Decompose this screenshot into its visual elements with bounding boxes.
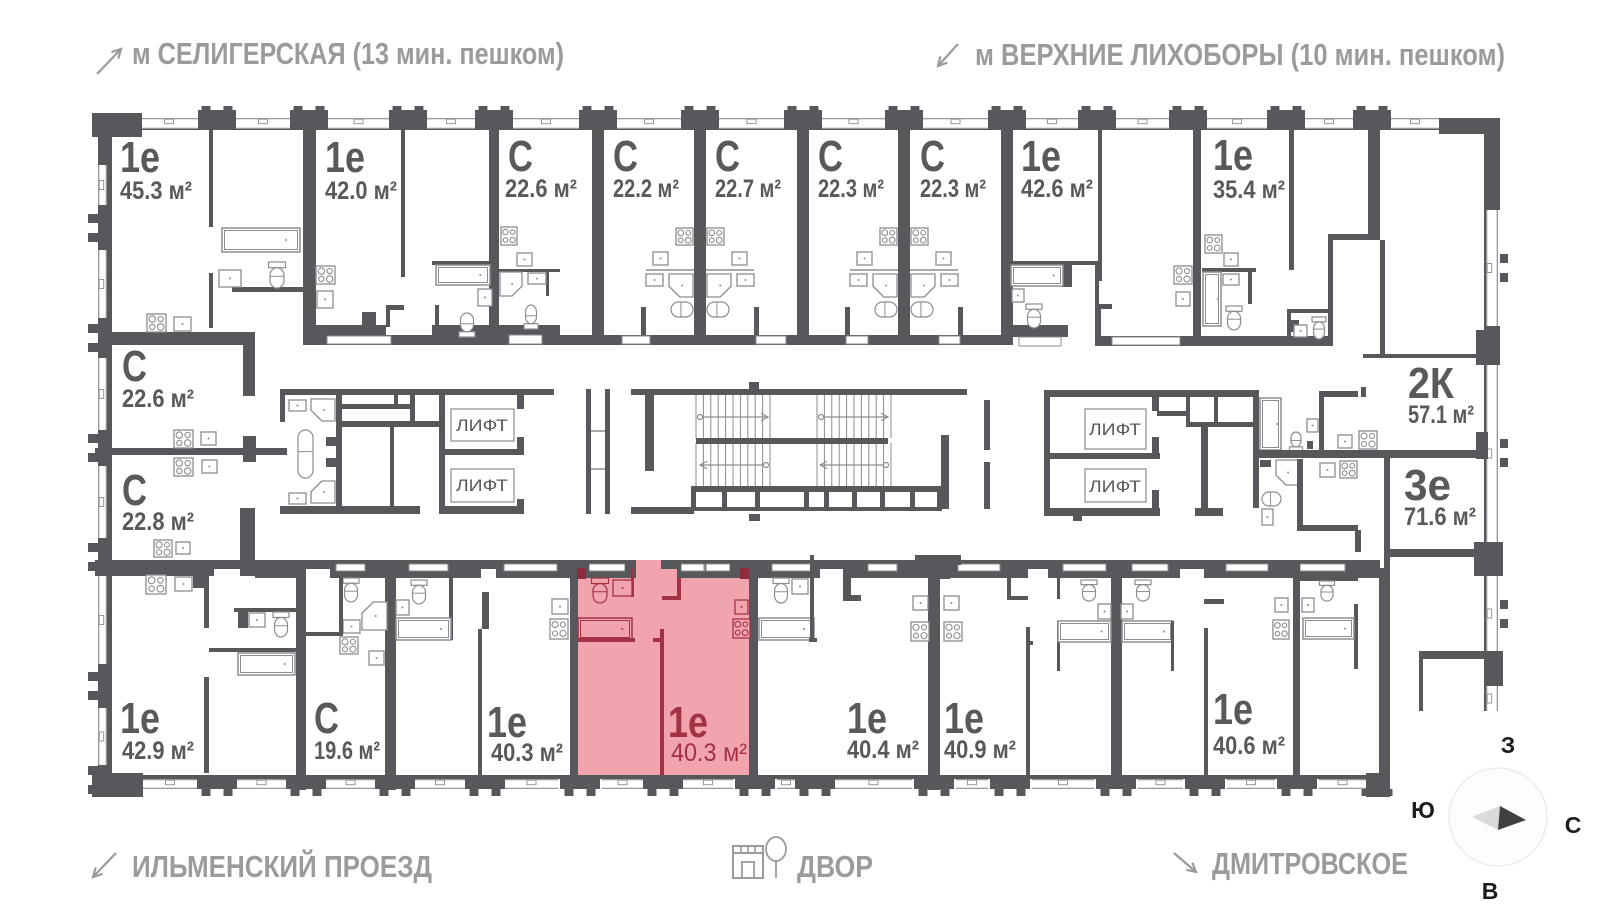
svg-text:ДВОР: ДВОР [797,849,873,884]
svg-text:м СЕЛИГЕРСКАЯ (13 мин. пешком): м СЕЛИГЕРСКАЯ (13 мин. пешком) [132,36,564,71]
svg-text:ИЛЬМЕНСКИЙ ПРОЕЗД: ИЛЬМЕНСКИЙ ПРОЕЗД [132,848,432,884]
svg-text:С: С [1565,812,1582,838]
svg-text:22.6 м²: 22.6 м² [122,385,194,413]
svg-text:35.4 м²: 35.4 м² [1213,176,1285,204]
svg-text:71.6 м²: 71.6 м² [1404,503,1476,531]
svg-text:57.1 м²: 57.1 м² [1408,401,1474,429]
svg-text:ЛИФТ: ЛИФТ [1089,477,1141,496]
svg-text:42.9 м²: 42.9 м² [122,737,194,765]
svg-text:ЛИФТ: ЛИФТ [456,416,508,435]
svg-text:22.3 м²: 22.3 м² [920,175,986,203]
svg-text:В: В [1482,878,1499,904]
svg-text:45.3 м²: 45.3 м² [120,177,192,205]
svg-text:С: С [818,132,843,181]
svg-text:1е: 1е [120,133,160,182]
svg-text:ДМИТРОВСКОЕ: ДМИТРОВСКОЕ [1212,846,1408,881]
svg-text:С: С [920,132,945,181]
svg-text:22.6 м²: 22.6 м² [505,175,577,203]
svg-text:м ВЕРХНИЕ ЛИХОБОРЫ (10 мин. пе: м ВЕРХНИЕ ЛИХОБОРЫ (10 мин. пешком) [975,37,1505,72]
svg-text:1е: 1е [1213,685,1253,734]
svg-text:1е: 1е [1021,132,1061,181]
svg-text:С: С [508,132,533,181]
svg-text:22.3 м²: 22.3 м² [818,175,884,203]
svg-text:22.7 м²: 22.7 м² [715,175,781,203]
svg-text:42.0 м²: 42.0 м² [325,177,397,205]
svg-text:ЛИФТ: ЛИФТ [456,476,508,495]
svg-text:З: З [1501,732,1515,758]
svg-text:42.6 м²: 42.6 м² [1021,175,1093,203]
svg-text:40.3 м²: 40.3 м² [491,739,563,767]
svg-text:ЛИФТ: ЛИФТ [1089,420,1141,439]
svg-text:1е: 1е [1213,131,1253,180]
svg-text:19.6 м²: 19.6 м² [314,737,380,765]
svg-text:22.2 м²: 22.2 м² [613,175,679,203]
svg-text:1е: 1е [325,133,365,182]
svg-text:Ю: Ю [1411,797,1435,823]
svg-text:40.3 м²: 40.3 м² [671,739,747,767]
svg-text:40.6 м²: 40.6 м² [1213,732,1285,760]
svg-text:С: С [613,132,638,181]
svg-text:С: С [122,342,147,391]
svg-text:1е: 1е [120,694,160,743]
svg-text:40.9 м²: 40.9 м² [944,736,1016,764]
svg-text:40.4 м²: 40.4 м² [847,736,919,764]
svg-text:С: С [314,694,339,743]
svg-text:С: С [715,132,740,181]
svg-text:22.8 м²: 22.8 м² [122,508,194,536]
